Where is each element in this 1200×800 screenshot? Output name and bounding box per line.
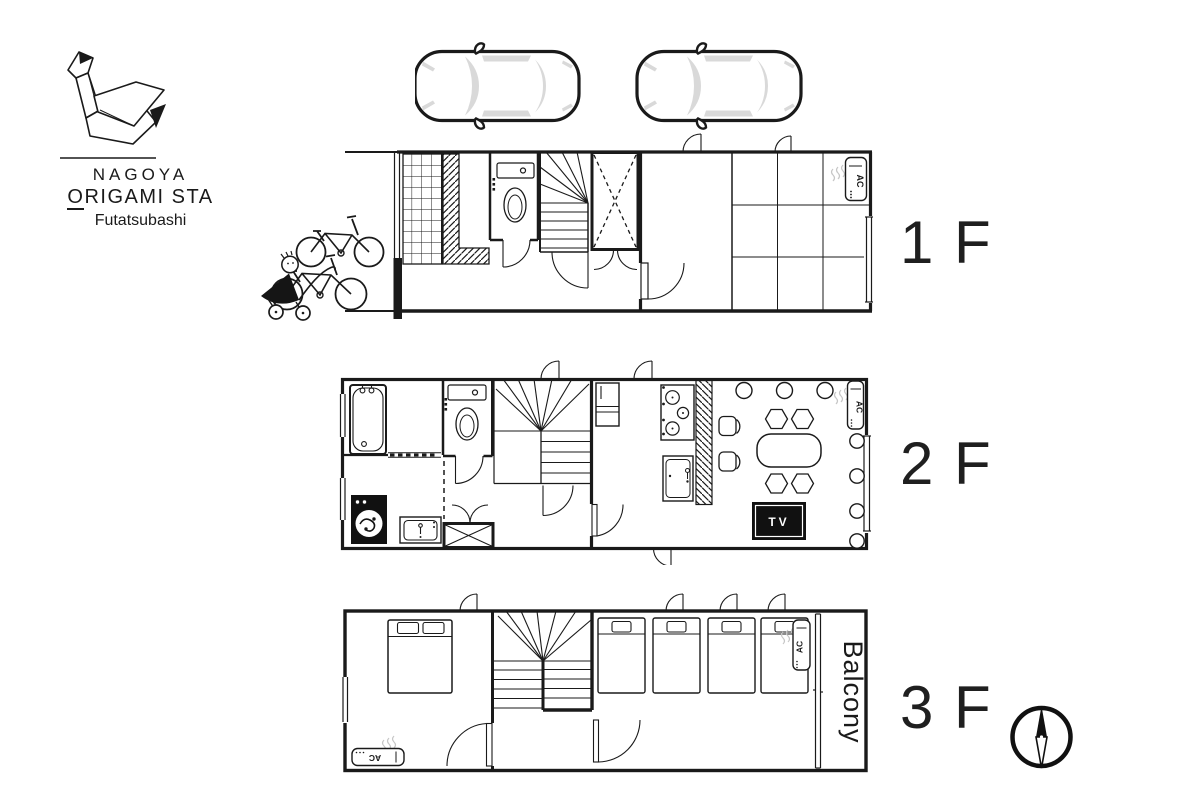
staircase-3f	[494, 611, 592, 710]
staircase-2f	[494, 379, 591, 484]
ac-label: AC	[855, 175, 865, 188]
hexagon-stool	[766, 410, 814, 494]
floor-label-2f: 2 F	[900, 429, 993, 498]
tv-icon: TV	[752, 502, 806, 540]
door-arc	[543, 486, 573, 516]
logo-name: NAGOYA	[38, 165, 243, 185]
bathtub-icon	[350, 385, 386, 454]
window	[862, 435, 873, 533]
ac-label: AC	[855, 401, 865, 413]
single-bed-icon	[708, 618, 755, 693]
door-arc	[683, 134, 701, 152]
single-bed-icon	[598, 618, 645, 693]
door-arc	[460, 594, 477, 611]
staircase-1f	[540, 152, 588, 252]
toilet-room-1f	[490, 152, 538, 267]
door-arc	[447, 724, 487, 767]
stool	[736, 383, 752, 399]
stool	[850, 504, 864, 518]
compass-north-needle-icon	[1000, 700, 1085, 775]
bath-sliding-door	[388, 453, 441, 457]
door-leaf	[592, 505, 597, 537]
logo: NAGOYA ORIGAMI STA Futatsubashi	[38, 48, 243, 230]
balcony-label: Balcony	[838, 640, 868, 743]
stool	[817, 383, 833, 399]
floor-label-3f: 3 F	[900, 673, 993, 742]
closet-1f	[592, 153, 638, 250]
toilet-icon	[445, 385, 487, 440]
ac-label: AC	[369, 753, 381, 763]
stool	[850, 434, 864, 448]
door-arc	[775, 136, 791, 152]
stove-icon	[661, 385, 694, 440]
shower-cubicle	[444, 524, 493, 548]
stool	[777, 383, 793, 399]
door-arc	[552, 252, 588, 288]
door-arc	[648, 263, 684, 299]
floorplan-canvas: NAGOYA ORIGAMI STA Futatsubashi	[0, 0, 1200, 800]
double-bed-icon	[388, 620, 452, 693]
door-arc	[541, 361, 559, 379]
hatched-counter	[696, 381, 712, 505]
single-bed-icon	[653, 618, 700, 693]
door-arc	[666, 594, 683, 611]
ac-label: AC	[795, 641, 805, 653]
balcony-window	[813, 614, 823, 768]
entry-wall	[394, 258, 403, 319]
parking-cars	[415, 38, 805, 133]
door-arc	[452, 505, 470, 523]
hatched-wall	[443, 154, 489, 264]
chair-icon	[719, 417, 740, 436]
car-top-view-icon	[415, 43, 579, 128]
logo-sub-initial: O	[67, 186, 84, 210]
chair-icon	[719, 452, 740, 471]
logo-location: Futatsubashi	[38, 212, 243, 230]
floor-plan-3f: AC AC Balcony	[330, 588, 880, 788]
ac-unit-1f: AC	[832, 158, 867, 201]
door-leaf	[487, 724, 493, 767]
baby-stroller-icon	[261, 251, 335, 320]
door-arc	[618, 250, 638, 270]
ac-unit-3f-left: AC	[352, 736, 404, 766]
logo-sub-rest: RIGAMI STA	[84, 186, 213, 208]
stool	[850, 469, 864, 483]
door-leaf	[641, 263, 648, 299]
tiled-entry	[403, 154, 442, 264]
door-arc	[654, 549, 672, 566]
toilet-icon	[493, 163, 535, 222]
kitchen-sink-icon	[663, 456, 693, 501]
floor-label-1f: 1 F	[900, 208, 993, 277]
window	[864, 216, 876, 303]
stool	[850, 534, 864, 548]
floor-plan-2f: TV AC	[330, 360, 880, 565]
door-leaf	[594, 720, 599, 762]
door-arc	[768, 594, 785, 611]
vanity-sink-icon	[400, 517, 441, 543]
ac-unit-3f-right: AC	[782, 620, 811, 670]
ac-unit-2f: AC	[835, 381, 865, 429]
door-arc	[599, 720, 641, 762]
door-arc	[597, 505, 623, 537]
toilet-room-2f	[443, 379, 493, 484]
door-arc	[720, 594, 737, 611]
door-arc	[470, 505, 488, 523]
door-arc	[634, 361, 652, 379]
door-arc	[594, 250, 614, 270]
tv-label: TV	[768, 515, 789, 529]
door-arc	[503, 240, 530, 267]
door-arc	[456, 456, 484, 484]
dining-table	[757, 434, 821, 467]
window	[340, 677, 351, 723]
logo-subtitle: ORIGAMI STA	[38, 186, 243, 209]
refrigerator-icon	[596, 383, 619, 426]
washing-machine-icon	[351, 495, 387, 544]
floor-plan-1f: AC	[330, 130, 880, 330]
origami-swan-icon	[38, 48, 188, 163]
